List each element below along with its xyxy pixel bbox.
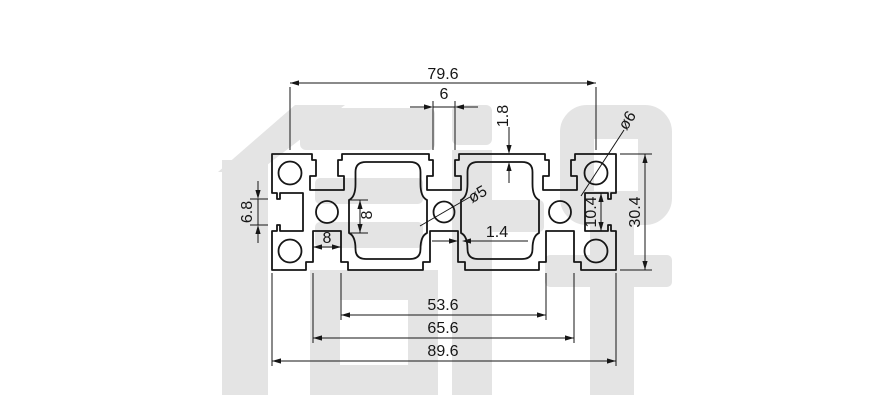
watermark-stroke: [590, 225, 634, 395]
arrowhead: [587, 80, 596, 85]
dim-label: 6.8: [239, 201, 256, 223]
watermark-stroke: [452, 105, 492, 145]
watermark-stroke: [315, 178, 423, 204]
dim-label: 79.6: [427, 66, 458, 83]
profile-drawing: 79.6 6 1.8 ø6 30.4 10.4: [0, 0, 880, 420]
dim-right-pocket-height: 10.4: [583, 193, 603, 231]
drawing-canvas: 79.6 6 1.8 ø6 30.4 10.4: [0, 0, 880, 420]
watermark-stroke: [325, 285, 423, 380]
dim-label: 10.4: [583, 196, 600, 227]
arrowhead: [341, 312, 350, 317]
hole-mid-left: [316, 201, 338, 223]
arrowhead: [506, 162, 511, 171]
watermark-stroke: [300, 108, 435, 150]
arrowhead: [272, 358, 281, 363]
dim-label: 53.6: [427, 297, 458, 314]
hole-left-top: [279, 162, 302, 185]
dim-label: 1.8: [495, 105, 512, 127]
arrowhead: [537, 312, 546, 317]
hole-left-bottom: [279, 240, 302, 263]
arrowhead: [506, 145, 511, 154]
arrowhead: [290, 80, 299, 85]
dim-label: 6: [440, 86, 449, 103]
arrowhead: [565, 335, 574, 340]
dim-label: 8: [359, 210, 376, 219]
dim-label: 89.6: [427, 343, 458, 360]
dim-label: 1.4: [486, 224, 508, 241]
watermark-stroke: [222, 160, 268, 395]
dim-label: 30.4: [627, 196, 644, 227]
dim-label: 65.6: [427, 320, 458, 337]
dim-label: 8: [323, 230, 332, 247]
dim-top-wall-thickness: 1.8: [495, 105, 512, 183]
